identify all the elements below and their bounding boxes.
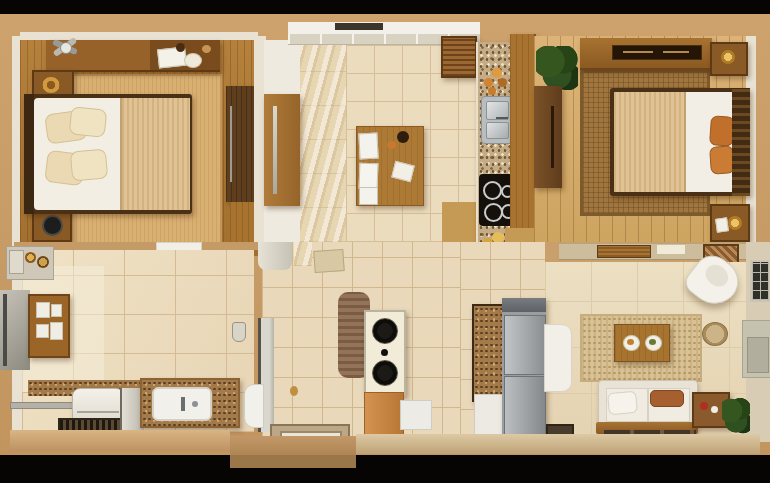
dark-handle xyxy=(551,106,554,168)
kitchen-island xyxy=(510,34,536,240)
chair xyxy=(359,163,379,190)
bed-right xyxy=(610,88,750,196)
marble-remnant xyxy=(294,242,312,266)
beige-mat xyxy=(313,249,344,273)
white-card xyxy=(715,217,729,233)
nightstand-right-bottom xyxy=(710,204,750,242)
headboard xyxy=(24,94,34,214)
blanket xyxy=(614,92,686,192)
flower xyxy=(387,141,396,149)
decor-plate xyxy=(184,53,202,68)
gold-lamp xyxy=(728,216,742,230)
decor-bowl xyxy=(42,77,60,93)
toilet-partial xyxy=(244,384,264,428)
decor-fruit xyxy=(202,45,211,53)
bottom-black-bar xyxy=(0,455,770,483)
floor-plan-canvas xyxy=(0,0,770,483)
pillow xyxy=(70,148,108,181)
vanity-sink xyxy=(152,387,212,421)
hall-wardrobe xyxy=(264,94,300,206)
marble-band xyxy=(300,40,346,242)
bottom-wall-left xyxy=(10,430,230,452)
black-clock xyxy=(42,215,63,236)
mirror-panel xyxy=(0,290,30,370)
plate xyxy=(623,335,640,351)
pipe xyxy=(10,402,76,409)
room-bathroom xyxy=(0,250,262,455)
gold-lamp xyxy=(721,50,735,64)
fridge-door xyxy=(504,376,546,440)
dresser-right xyxy=(580,38,712,70)
white-box xyxy=(400,400,432,430)
burner xyxy=(483,181,502,200)
dining-table xyxy=(356,126,424,206)
corner-shelf xyxy=(6,246,54,280)
chair xyxy=(359,187,378,205)
bottom-wall-right xyxy=(356,434,760,454)
blanket xyxy=(120,98,190,210)
cooktop xyxy=(479,174,513,226)
threshold-notch xyxy=(230,455,356,468)
fruit-cluster xyxy=(482,64,510,96)
vanity xyxy=(140,378,240,428)
tv-panel xyxy=(742,320,770,378)
chair xyxy=(358,133,378,160)
plant-icon xyxy=(722,398,750,434)
dark-tray xyxy=(612,45,702,60)
sofa xyxy=(598,380,696,434)
brass-item xyxy=(37,256,49,268)
slatted-window xyxy=(750,260,770,302)
speaker-base xyxy=(364,392,404,438)
pouf xyxy=(702,322,728,346)
kitchen-counter xyxy=(476,42,514,244)
room-living xyxy=(460,242,770,455)
plant-icon xyxy=(536,46,578,90)
top-grey-cabinet xyxy=(258,242,292,270)
room-kitchen xyxy=(440,14,545,244)
shower-fixture xyxy=(232,322,246,342)
dark-wardrobe xyxy=(534,86,562,188)
ceiling-fan-icon xyxy=(50,34,80,60)
decor-knob xyxy=(176,43,185,52)
nightstand-right-top xyxy=(710,42,748,76)
room-bedroom-left xyxy=(0,14,262,250)
steel-handle xyxy=(273,106,277,194)
faucet-icon xyxy=(181,397,185,411)
gold-knob xyxy=(290,386,298,396)
double-sink xyxy=(481,96,513,144)
pillow xyxy=(69,106,108,138)
pillow-brown xyxy=(650,390,684,407)
headboard xyxy=(732,88,750,196)
island-base-light xyxy=(442,202,478,244)
coffee-table xyxy=(614,324,670,362)
speaker-driver xyxy=(372,318,398,344)
brass-item xyxy=(25,252,36,263)
speaker-driver xyxy=(372,360,398,386)
bed-left xyxy=(24,94,192,214)
plate xyxy=(391,161,415,182)
faucet-icon xyxy=(496,117,508,119)
white-door-panel xyxy=(544,324,572,392)
room-bedroom-right xyxy=(534,14,770,242)
plate xyxy=(645,335,662,351)
window-vent xyxy=(335,23,383,30)
speaker-tower xyxy=(364,310,406,396)
refrigerator xyxy=(502,298,546,440)
pillow-white xyxy=(607,391,638,415)
medicine-cabinet xyxy=(28,294,70,358)
vase xyxy=(397,131,409,143)
fridge-door xyxy=(504,315,546,375)
top-black-bar xyxy=(0,0,770,14)
speaker-dot xyxy=(381,349,388,356)
